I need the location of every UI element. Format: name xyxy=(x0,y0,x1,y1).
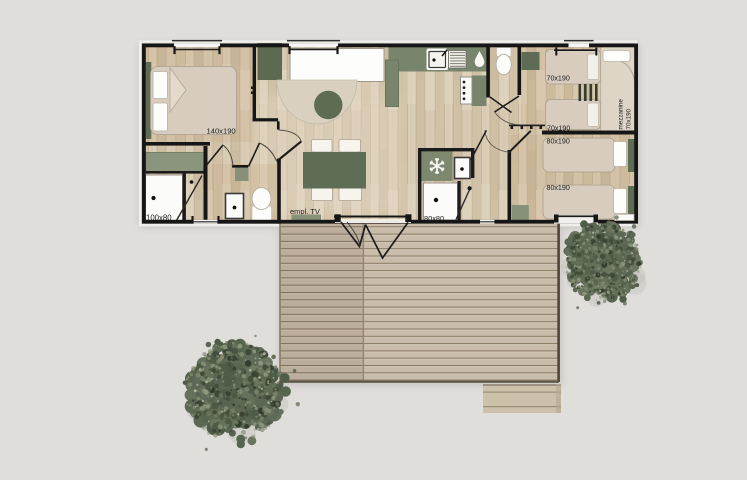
svg-text:140x190: 140x190 xyxy=(207,127,236,136)
svg-text:70x190: 70x190 xyxy=(626,108,633,129)
svg-text:70x190: 70x190 xyxy=(547,75,570,83)
svg-text:mezzanine: mezzanine xyxy=(618,99,625,130)
svg-text:80x190: 80x190 xyxy=(547,138,570,146)
svg-text:80x190: 80x190 xyxy=(547,184,570,192)
